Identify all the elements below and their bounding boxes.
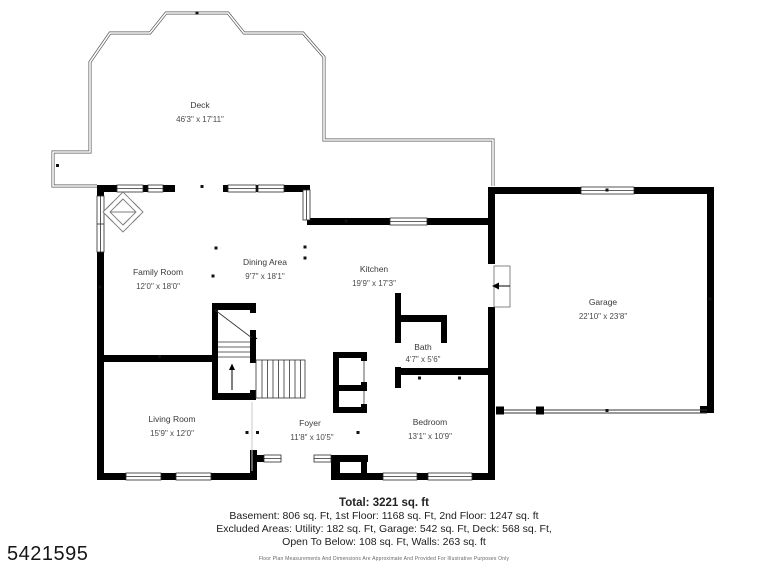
room-dims-living-room: 15'9" x 12'0" xyxy=(150,429,194,438)
room-label-foyer: Foyer xyxy=(299,418,321,428)
room-dims-deck: 46'3" x 17'11" xyxy=(176,115,224,124)
garage-entry-landing xyxy=(492,266,510,307)
summary-line-2: Excluded Areas: Utility: 182 sq. Ft, Gar… xyxy=(0,523,768,536)
room-label-kitchen: Kitchen xyxy=(360,264,389,274)
deck-outline xyxy=(53,13,493,186)
wall-openings xyxy=(175,184,496,307)
fireplace-icon xyxy=(103,192,143,232)
summary-line-3: Open To Below: 108 sq. Ft, Walls: 263 sq… xyxy=(0,536,768,549)
listing-id: 5421595 xyxy=(7,543,88,566)
room-label-family-room: Family Room xyxy=(133,267,183,277)
room-dims-foyer: 11'8" x 10'5" xyxy=(290,433,333,442)
floorplan-page: Deck 46'3" x 17'11" Family Room 12'0" x … xyxy=(0,0,768,576)
room-dims-bedroom: 13'1" x 10'9" xyxy=(408,432,452,441)
room-label-bath: Bath xyxy=(414,342,432,352)
room-label-dining-area: Dining Area xyxy=(243,257,287,267)
stairs-icon xyxy=(215,310,305,398)
room-dims-family-room: 12'0" x 18'0" xyxy=(136,282,180,291)
total-area-text: Total: 3221 sq. ft xyxy=(0,497,768,510)
room-dims-dining-area: 9'7" x 18'1" xyxy=(245,272,285,281)
room-dims-bath: 4'7" x 5'6" xyxy=(406,355,441,364)
area-summary: Total: 3221 sq. ft Basement: 806 sq. Ft,… xyxy=(0,497,768,562)
room-label-bedroom: Bedroom xyxy=(413,417,448,427)
garage-door xyxy=(496,407,707,415)
room-labels: Deck 46'3" x 17'11" Family Room 12'0" x … xyxy=(133,100,627,442)
floorplan-drawing: Deck 46'3" x 17'11" Family Room 12'0" x … xyxy=(0,0,768,576)
room-dims-kitchen: 19'9" x 17'3" xyxy=(352,279,396,288)
room-label-garage: Garage xyxy=(589,297,618,307)
disclaimer-text: Floor Plan Measurements And Dimensions A… xyxy=(0,556,768,562)
room-label-deck: Deck xyxy=(190,100,210,110)
room-dims-garage: 22'10" x 23'8" xyxy=(579,312,627,321)
summary-line-1: Basement: 806 sq. Ft, 1st Floor: 1168 sq… xyxy=(0,510,768,523)
room-label-living-room: Living Room xyxy=(148,414,195,424)
